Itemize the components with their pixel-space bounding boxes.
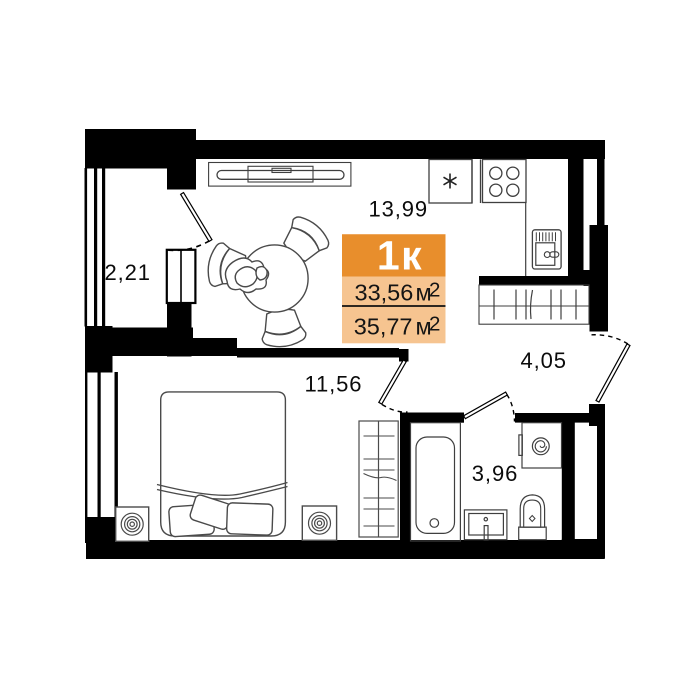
svg-text:11,56: 11,56 xyxy=(305,372,363,397)
svg-text:4,05: 4,05 xyxy=(521,348,567,373)
svg-text:35,77: 35,77 xyxy=(354,313,413,339)
svg-text:2,21: 2,21 xyxy=(105,260,151,285)
svg-text:2: 2 xyxy=(429,279,440,302)
svg-text:1к: 1к xyxy=(377,233,423,279)
svg-text:2: 2 xyxy=(429,313,440,336)
svg-text:13,99: 13,99 xyxy=(369,196,429,221)
svg-text:33,56: 33,56 xyxy=(355,279,414,305)
svg-text:3,96: 3,96 xyxy=(472,461,518,486)
